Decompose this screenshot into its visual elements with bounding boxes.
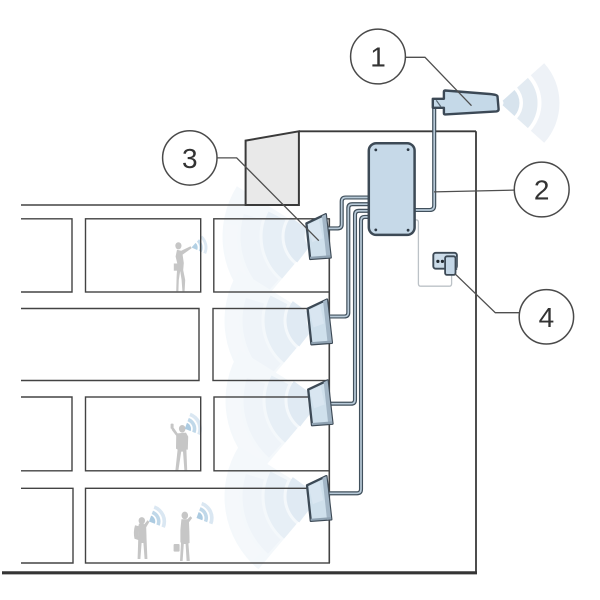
svg-text:3: 3 (182, 143, 198, 174)
svg-text:1: 1 (370, 42, 386, 73)
svg-text:2: 2 (534, 175, 550, 206)
svg-text:4: 4 (539, 302, 555, 333)
